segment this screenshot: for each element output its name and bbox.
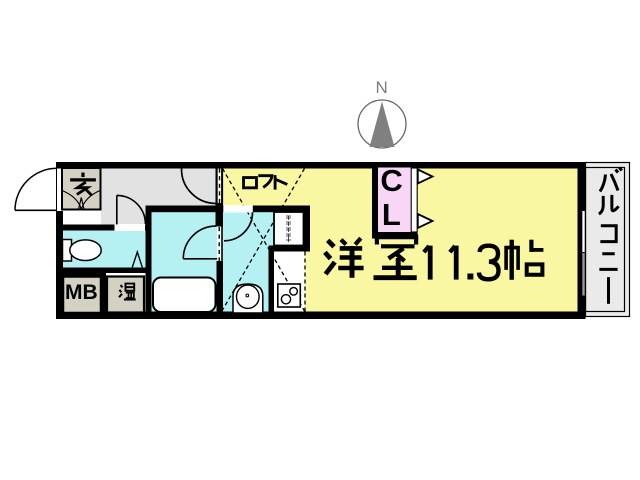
svg-text:L: L: [382, 197, 401, 232]
svg-text:MB: MB: [65, 281, 98, 304]
svg-text:C: C: [380, 163, 402, 198]
svg-text:N: N: [375, 78, 387, 97]
